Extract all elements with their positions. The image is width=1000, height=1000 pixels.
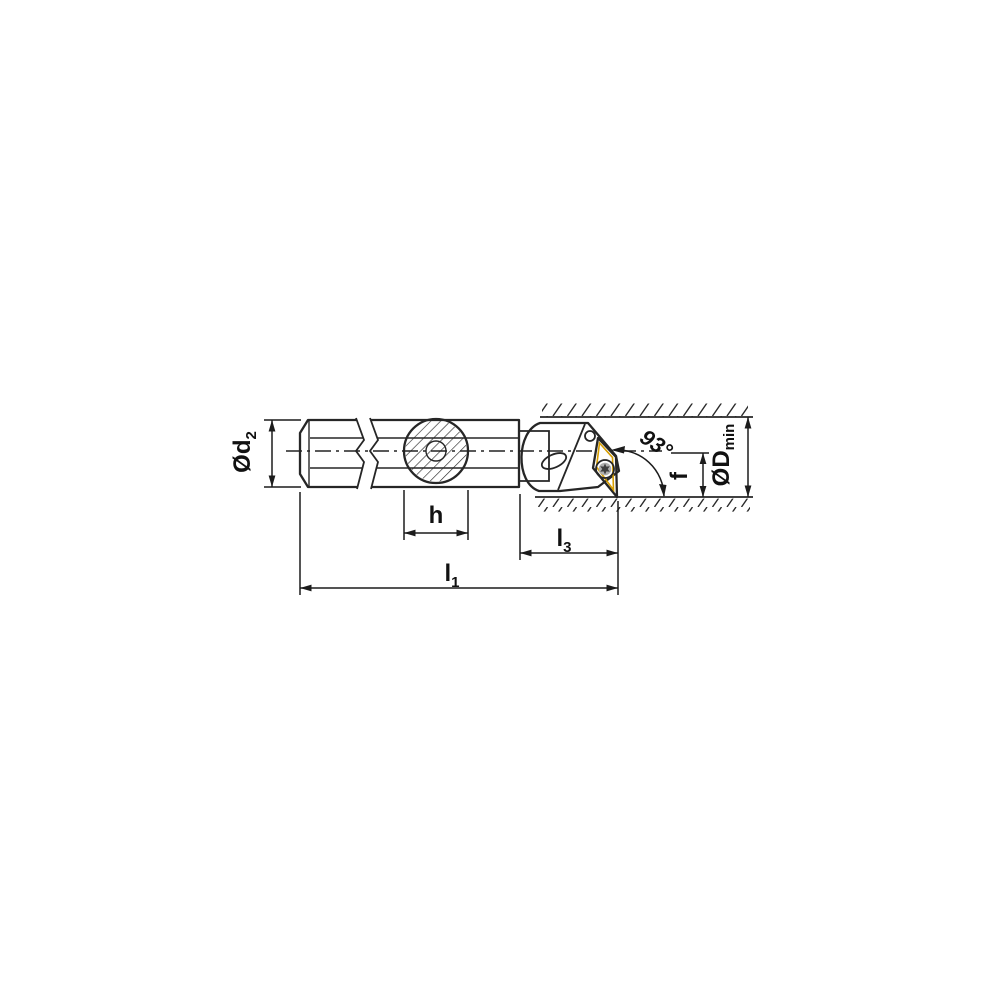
workpiece-bottom-surface [535,497,753,512]
top-surface-hatch [542,404,748,417]
bottom-surface-hatch [537,499,750,512]
background [0,0,1000,1000]
workpiece-top-surface [540,404,753,418]
torx-screw-icon [596,460,614,478]
boring-bar-technical-drawing: Ød2 h l3 l1 f ØDmin [0,0,1000,1000]
label-tip-offset: f [666,471,693,480]
label-boss-width: h [429,502,444,529]
drawing-canvas: Ød2 h l3 l1 f ØDmin [0,0,1000,1000]
